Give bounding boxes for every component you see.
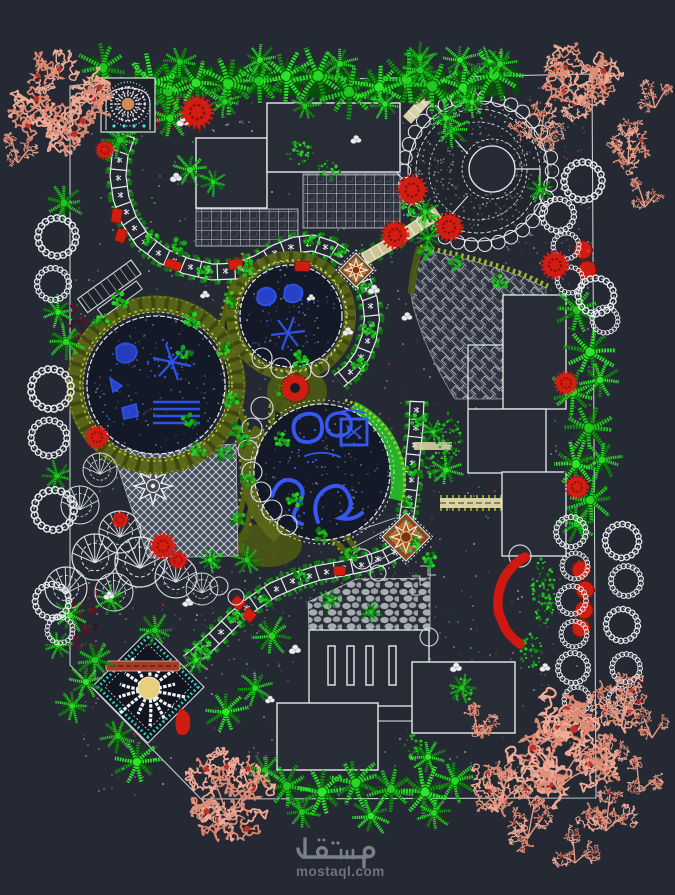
svg-text:mostaql.com: mostaql.com (296, 864, 385, 879)
